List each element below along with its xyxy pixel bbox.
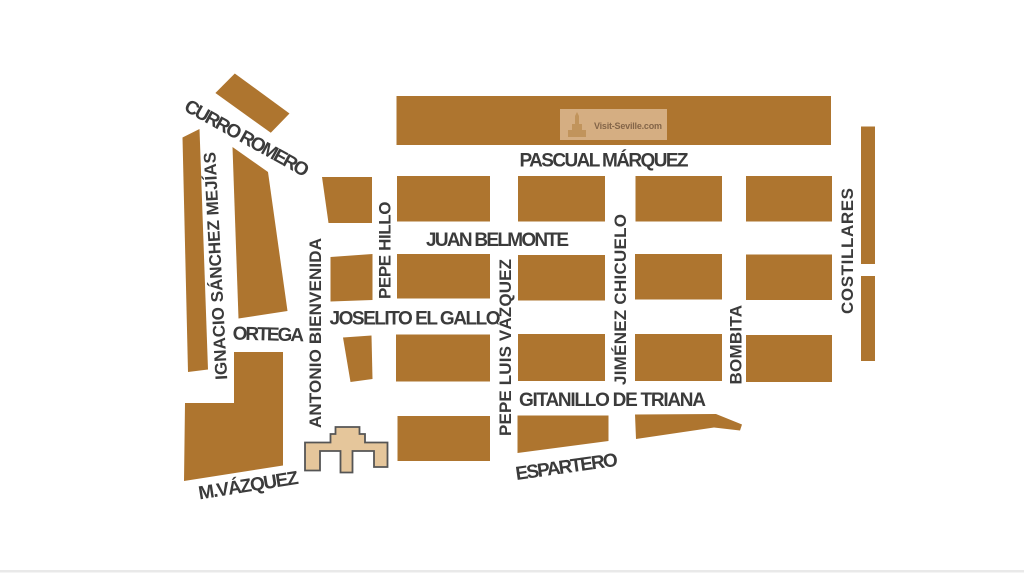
svg-text:PEPE HILLO: PEPE HILLO — [375, 202, 394, 300]
svg-text:ORTEGA: ORTEGA — [232, 324, 304, 347]
svg-text:JOSELITO EL GALLO: JOSELITO EL GALLO — [330, 309, 501, 330]
svg-text:PASCUAL MÁRQUEZ: PASCUAL MÁRQUEZ — [520, 150, 689, 172]
svg-text:GITANILLO DE TRIANA: GITANILLO DE TRIANA — [519, 390, 706, 411]
svg-text:BOMBITA: BOMBITA — [727, 305, 746, 385]
svg-text:COSTILLARES: COSTILLARES — [838, 188, 857, 314]
svg-text:JIMÉNEZ CHICUELO: JIMÉNEZ CHICUELO — [611, 214, 630, 385]
svg-text:ANTONIO BIENVENIDA: ANTONIO BIENVENIDA — [306, 238, 325, 428]
svg-text:JUAN BELMONTE: JUAN BELMONTE — [426, 230, 569, 251]
svg-text:Visit-Seville.com: Visit-Seville.com — [594, 121, 662, 131]
svg-text:PEPE LUIS VÁZQUEZ: PEPE LUIS VÁZQUEZ — [496, 259, 515, 436]
